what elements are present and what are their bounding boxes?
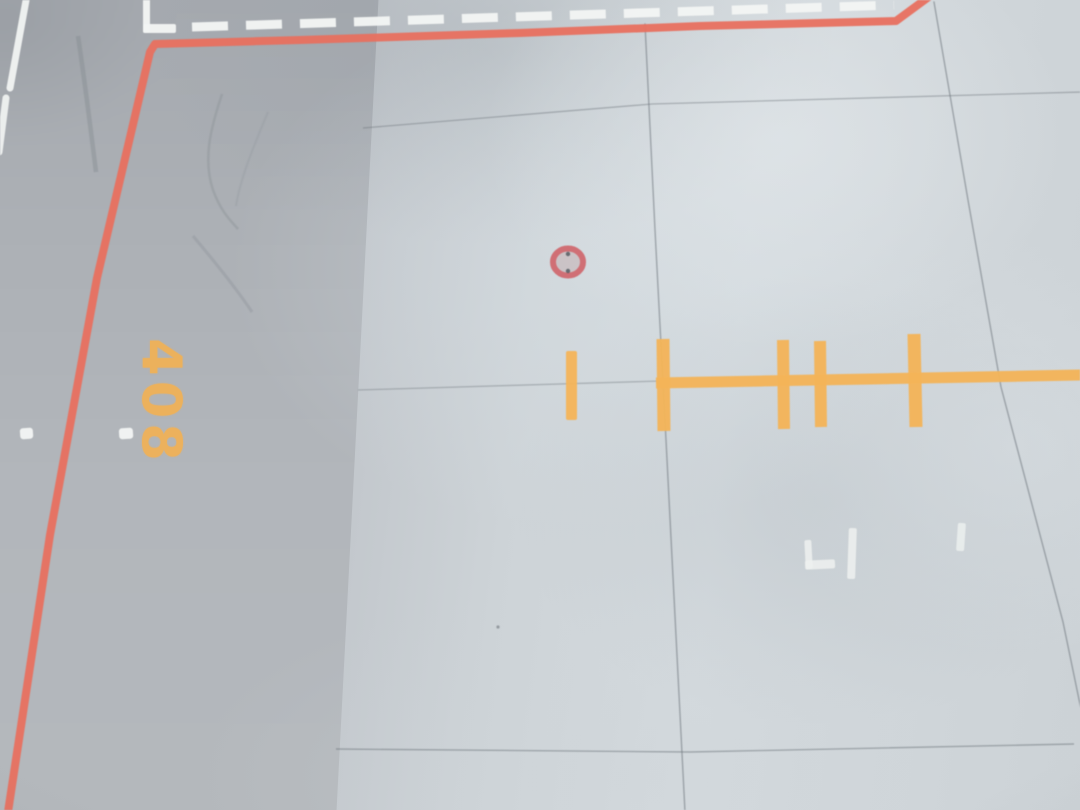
airport-apron-mat-photo: 408 xyxy=(0,0,1080,810)
panel-seam-horizontal-middle xyxy=(358,381,660,390)
grommet-dot-top xyxy=(566,252,570,256)
left-strip-scuff xyxy=(78,36,96,172)
panel-seam-horizontal-bottom xyxy=(336,744,1074,752)
runway-edge-line-upper xyxy=(10,0,27,88)
stand-mark-vertical-bar xyxy=(847,528,857,579)
lead-in-crossbar-3 xyxy=(820,341,821,427)
grommet-dot-bottom xyxy=(566,269,570,273)
lead-in-crossbar-4 xyxy=(914,334,916,427)
panel-seam-horizontal-top xyxy=(363,92,1080,128)
dust-speck xyxy=(496,625,499,628)
stand-number-label: 408 xyxy=(134,338,188,466)
lead-in-crossbar-1 xyxy=(663,339,664,431)
corner-mark-top-left-horizontal xyxy=(143,24,176,33)
stand-lead-in-line xyxy=(656,375,1080,383)
yellow-stub-dash xyxy=(566,351,577,420)
lead-in-crossbar-2 xyxy=(783,340,784,429)
wrinkle-crease-2 xyxy=(193,236,252,312)
edge-dash-left xyxy=(20,428,34,440)
panel-seam-vertical-right xyxy=(934,2,1080,714)
runway-edge-line-lower xyxy=(0,98,6,152)
wrinkle-crease-3 xyxy=(236,112,268,206)
stand-mark-short-dash xyxy=(956,523,966,551)
corner-mark-stand-L-horizontal xyxy=(805,559,835,570)
wrinkle-crease-1 xyxy=(208,94,238,229)
